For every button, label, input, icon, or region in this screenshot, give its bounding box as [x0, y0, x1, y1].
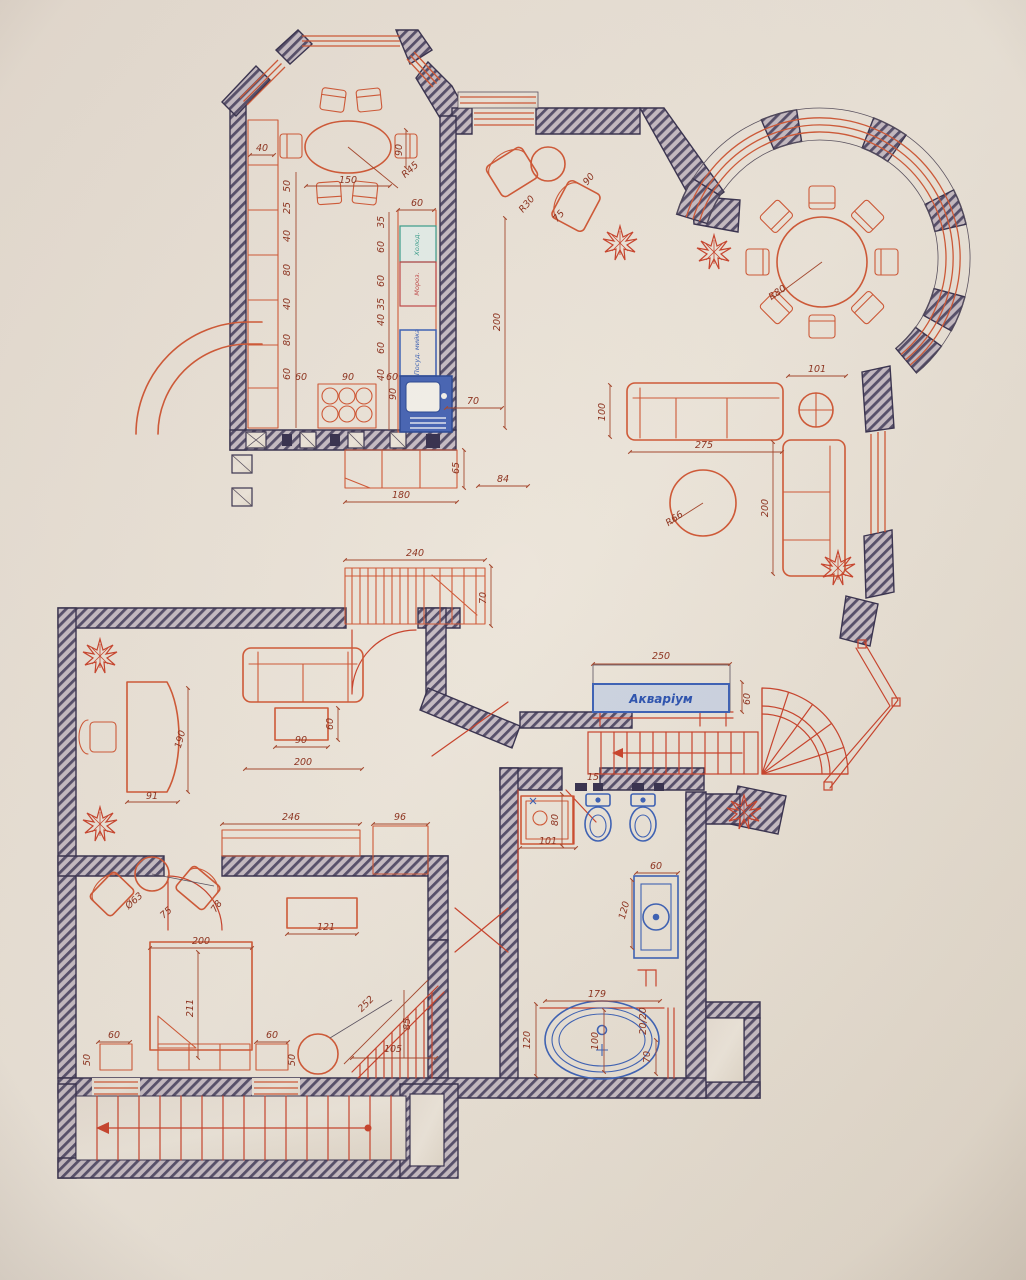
dim-label: 50: [287, 1054, 298, 1066]
dim-label: 105: [384, 1044, 402, 1055]
dim-label: 60: [650, 861, 662, 872]
dim-label: 60: [108, 1030, 120, 1041]
dim-label: 60: [386, 372, 398, 383]
dim-label: 120: [522, 1031, 533, 1049]
dim-label: 40: [256, 143, 268, 154]
dim-label: 240: [406, 548, 424, 559]
dim-label: 85: [402, 1018, 413, 1030]
dim-label: 50: [282, 180, 293, 192]
dim-label: 40: [376, 314, 387, 326]
dim-label: 90: [295, 735, 307, 746]
dim-label: 60: [325, 718, 336, 730]
dim-label: 179: [588, 989, 606, 1000]
dim-label: 100: [597, 403, 608, 421]
dim-label: 60: [376, 342, 387, 354]
dim-label: 200: [492, 313, 503, 331]
dim-label: 70: [478, 592, 489, 604]
dim-label: 200: [192, 936, 210, 947]
dim-label: 84: [497, 474, 509, 485]
dim-label: 90: [394, 144, 405, 156]
dim-label: 65: [451, 462, 462, 474]
dim-label: 60: [295, 372, 307, 383]
dim-label: 60: [376, 275, 387, 287]
freezer-label: Мороз.: [413, 272, 421, 295]
dim-label: 60: [266, 1030, 278, 1041]
dim-label: 40: [282, 230, 293, 242]
dim-label: 35: [376, 216, 387, 228]
dim-label: 60: [742, 693, 753, 705]
dim-label: 90: [388, 388, 399, 400]
dim-label: 96: [394, 812, 406, 823]
dim-label: 246: [282, 812, 300, 823]
aquarium-label: Акваріум: [628, 692, 693, 706]
dim-label: 40: [282, 298, 293, 310]
dim-label: 35: [376, 298, 387, 310]
stair-door-slot: [410, 1094, 444, 1166]
dim-label: 150: [339, 175, 357, 186]
dim-label: 275: [695, 440, 713, 451]
floor-plan-drawing: 40 90 150 R45 50 25 40 80 40 80 60 60 90…: [0, 0, 1026, 1280]
dim-label: 91: [146, 791, 158, 802]
dishwasher-label: Посуд. мийка: [413, 329, 421, 375]
dim-label: 70: [467, 396, 479, 407]
dim-label: 70: [642, 1051, 653, 1063]
fridge-label: Холод.: [413, 232, 421, 256]
dim-label: 25: [282, 202, 293, 214]
dim-label: 80: [282, 264, 293, 276]
dim-label: 60: [411, 198, 423, 209]
dim-label: 60: [376, 241, 387, 253]
dim-label: 15: [587, 772, 599, 783]
dim-label: 60: [282, 368, 293, 380]
dim-label: 80: [282, 334, 293, 346]
dim-label: 80: [550, 814, 561, 826]
shaft-opening: [706, 1018, 744, 1082]
dim-label: 50: [82, 1054, 93, 1066]
dim-label: 101: [539, 836, 557, 847]
dim-label: 211: [185, 999, 196, 1017]
dim-label: 121: [317, 922, 335, 933]
dim-label: 100: [590, 1032, 601, 1050]
dim-label: 200: [294, 757, 312, 768]
dim-label: 40: [376, 369, 387, 381]
dim-label: 200: [760, 499, 771, 517]
dim-label: 180: [392, 490, 410, 501]
floor-plan-photo: 40 90 150 R45 50 25 40 80 40 80 60 60 90…: [0, 0, 1026, 1280]
dim-label: 90: [342, 372, 354, 383]
dim-label: 250: [652, 651, 670, 662]
dim-label: 20/20: [638, 1007, 649, 1034]
dim-label: 101: [808, 364, 826, 375]
